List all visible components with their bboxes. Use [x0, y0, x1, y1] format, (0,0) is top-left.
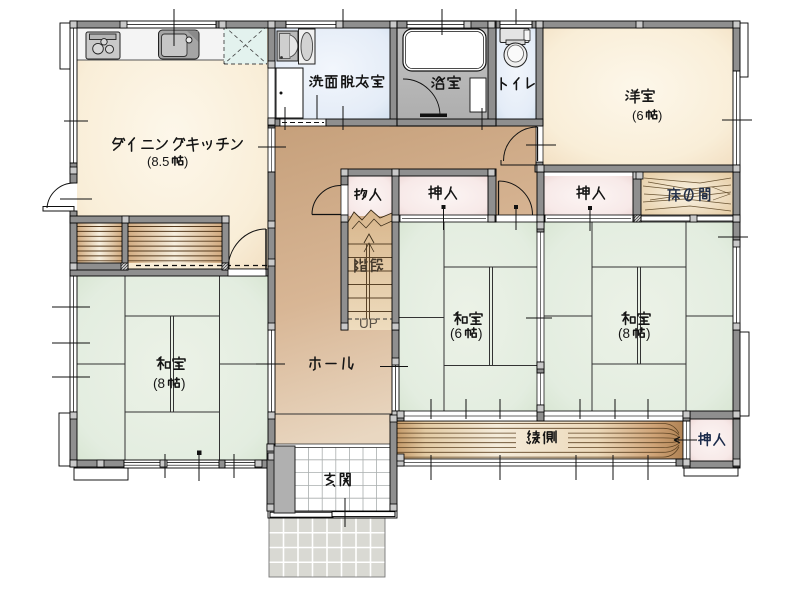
svg-text:(8: (8	[153, 376, 165, 391]
svg-text:): )	[658, 108, 662, 123]
svg-text:UP: UP	[359, 316, 378, 331]
svg-text:(6: (6	[450, 326, 462, 341]
svg-text:(8.5: (8.5	[147, 154, 169, 169]
svg-text:): )	[184, 154, 188, 169]
svg-text:): )	[478, 326, 483, 341]
svg-text:): )	[181, 376, 186, 391]
svg-text:(8: (8	[618, 326, 630, 341]
svg-text:(6: (6	[632, 108, 644, 123]
svg-text:): )	[646, 326, 651, 341]
